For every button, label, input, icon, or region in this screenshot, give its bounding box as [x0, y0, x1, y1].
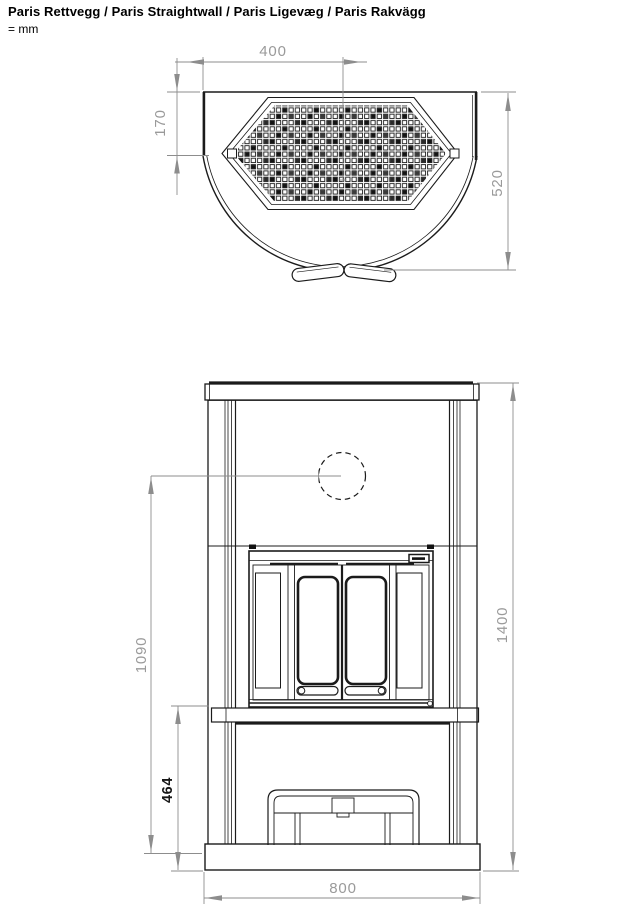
door-glass-outer-left — [256, 573, 281, 688]
front-view: 1090 464 1400 — [133, 383, 519, 905]
arrow-up-icon — [510, 384, 516, 401]
door-glass-right — [346, 577, 386, 684]
arrow-right-icon — [344, 59, 361, 65]
firebox-doors — [249, 551, 433, 707]
technical-drawing: 400 170 520 — [0, 0, 644, 914]
dimension-front-800: 800 — [204, 872, 480, 904]
arrow-right-icon — [462, 895, 479, 901]
dim-label-464: 464 — [160, 777, 176, 803]
dim-label-400: 400 — [259, 43, 286, 60]
dim-label-800: 800 — [329, 880, 356, 897]
arrow-down-icon — [505, 252, 511, 269]
dimension-front-1400: 1400 — [477, 383, 519, 871]
unit-note: = mm — [8, 22, 426, 36]
arrow-left-icon — [205, 895, 222, 901]
drawing-page: Paris Rettvegg / Paris Straightwall / Pa… — [0, 0, 644, 914]
dimension-front-464: 464 — [160, 706, 209, 871]
door-handle-right-ring — [378, 687, 385, 694]
arrow-up-icon — [175, 707, 181, 724]
flue-outlet — [151, 453, 366, 500]
arrow-down-icon — [510, 852, 516, 869]
drawing-title: Paris Rettvegg / Paris Straightwall / Pa… — [8, 4, 426, 19]
arrow-down-icon — [175, 852, 181, 869]
dim-label-1090: 1090 — [133, 637, 150, 674]
front-top-cap — [205, 383, 479, 401]
plinth — [205, 844, 480, 870]
arrow-left-icon — [187, 59, 204, 65]
arrow-down-icon — [148, 835, 154, 852]
door-glass-left — [298, 577, 338, 684]
dim-label-170: 170 — [152, 109, 169, 136]
arrow-up-icon — [174, 157, 180, 174]
niche-notch-tab — [337, 813, 349, 817]
door-handle-left-ring — [298, 687, 305, 694]
dimension-top-400: 400 — [175, 43, 367, 90]
dim-label-1400: 1400 — [494, 607, 511, 644]
grille-left-tab — [228, 149, 237, 158]
top-grille — [222, 98, 459, 210]
arrow-up-icon — [505, 94, 511, 111]
niche-notch — [332, 798, 354, 813]
arrow-up-icon — [148, 477, 154, 494]
mid-shelf — [212, 708, 479, 724]
top-view: 400 170 520 — [152, 43, 516, 282]
dim-label-520: 520 — [489, 169, 506, 196]
grille-right-tab — [450, 149, 459, 158]
base-niche — [268, 790, 419, 845]
drawing-header: Paris Rettvegg / Paris Straightwall / Pa… — [8, 4, 426, 36]
arrow-down-icon — [174, 74, 180, 91]
door-glass-outer-right — [397, 573, 422, 688]
dimension-top-170: 170 — [152, 58, 209, 195]
